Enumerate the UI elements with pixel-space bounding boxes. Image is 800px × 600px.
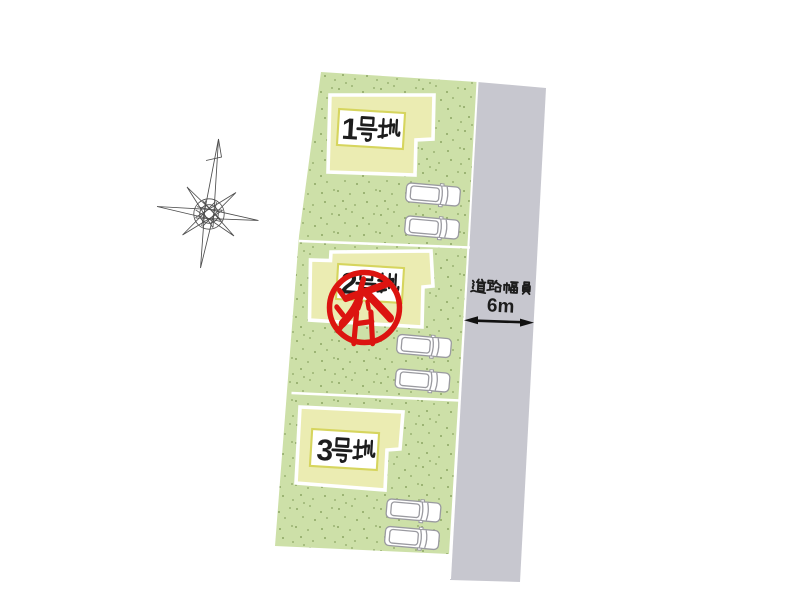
svg-text:1: 1 [341, 113, 360, 147]
svg-text:3: 3 [316, 434, 335, 468]
svg-text:6m: 6m [486, 295, 515, 317]
